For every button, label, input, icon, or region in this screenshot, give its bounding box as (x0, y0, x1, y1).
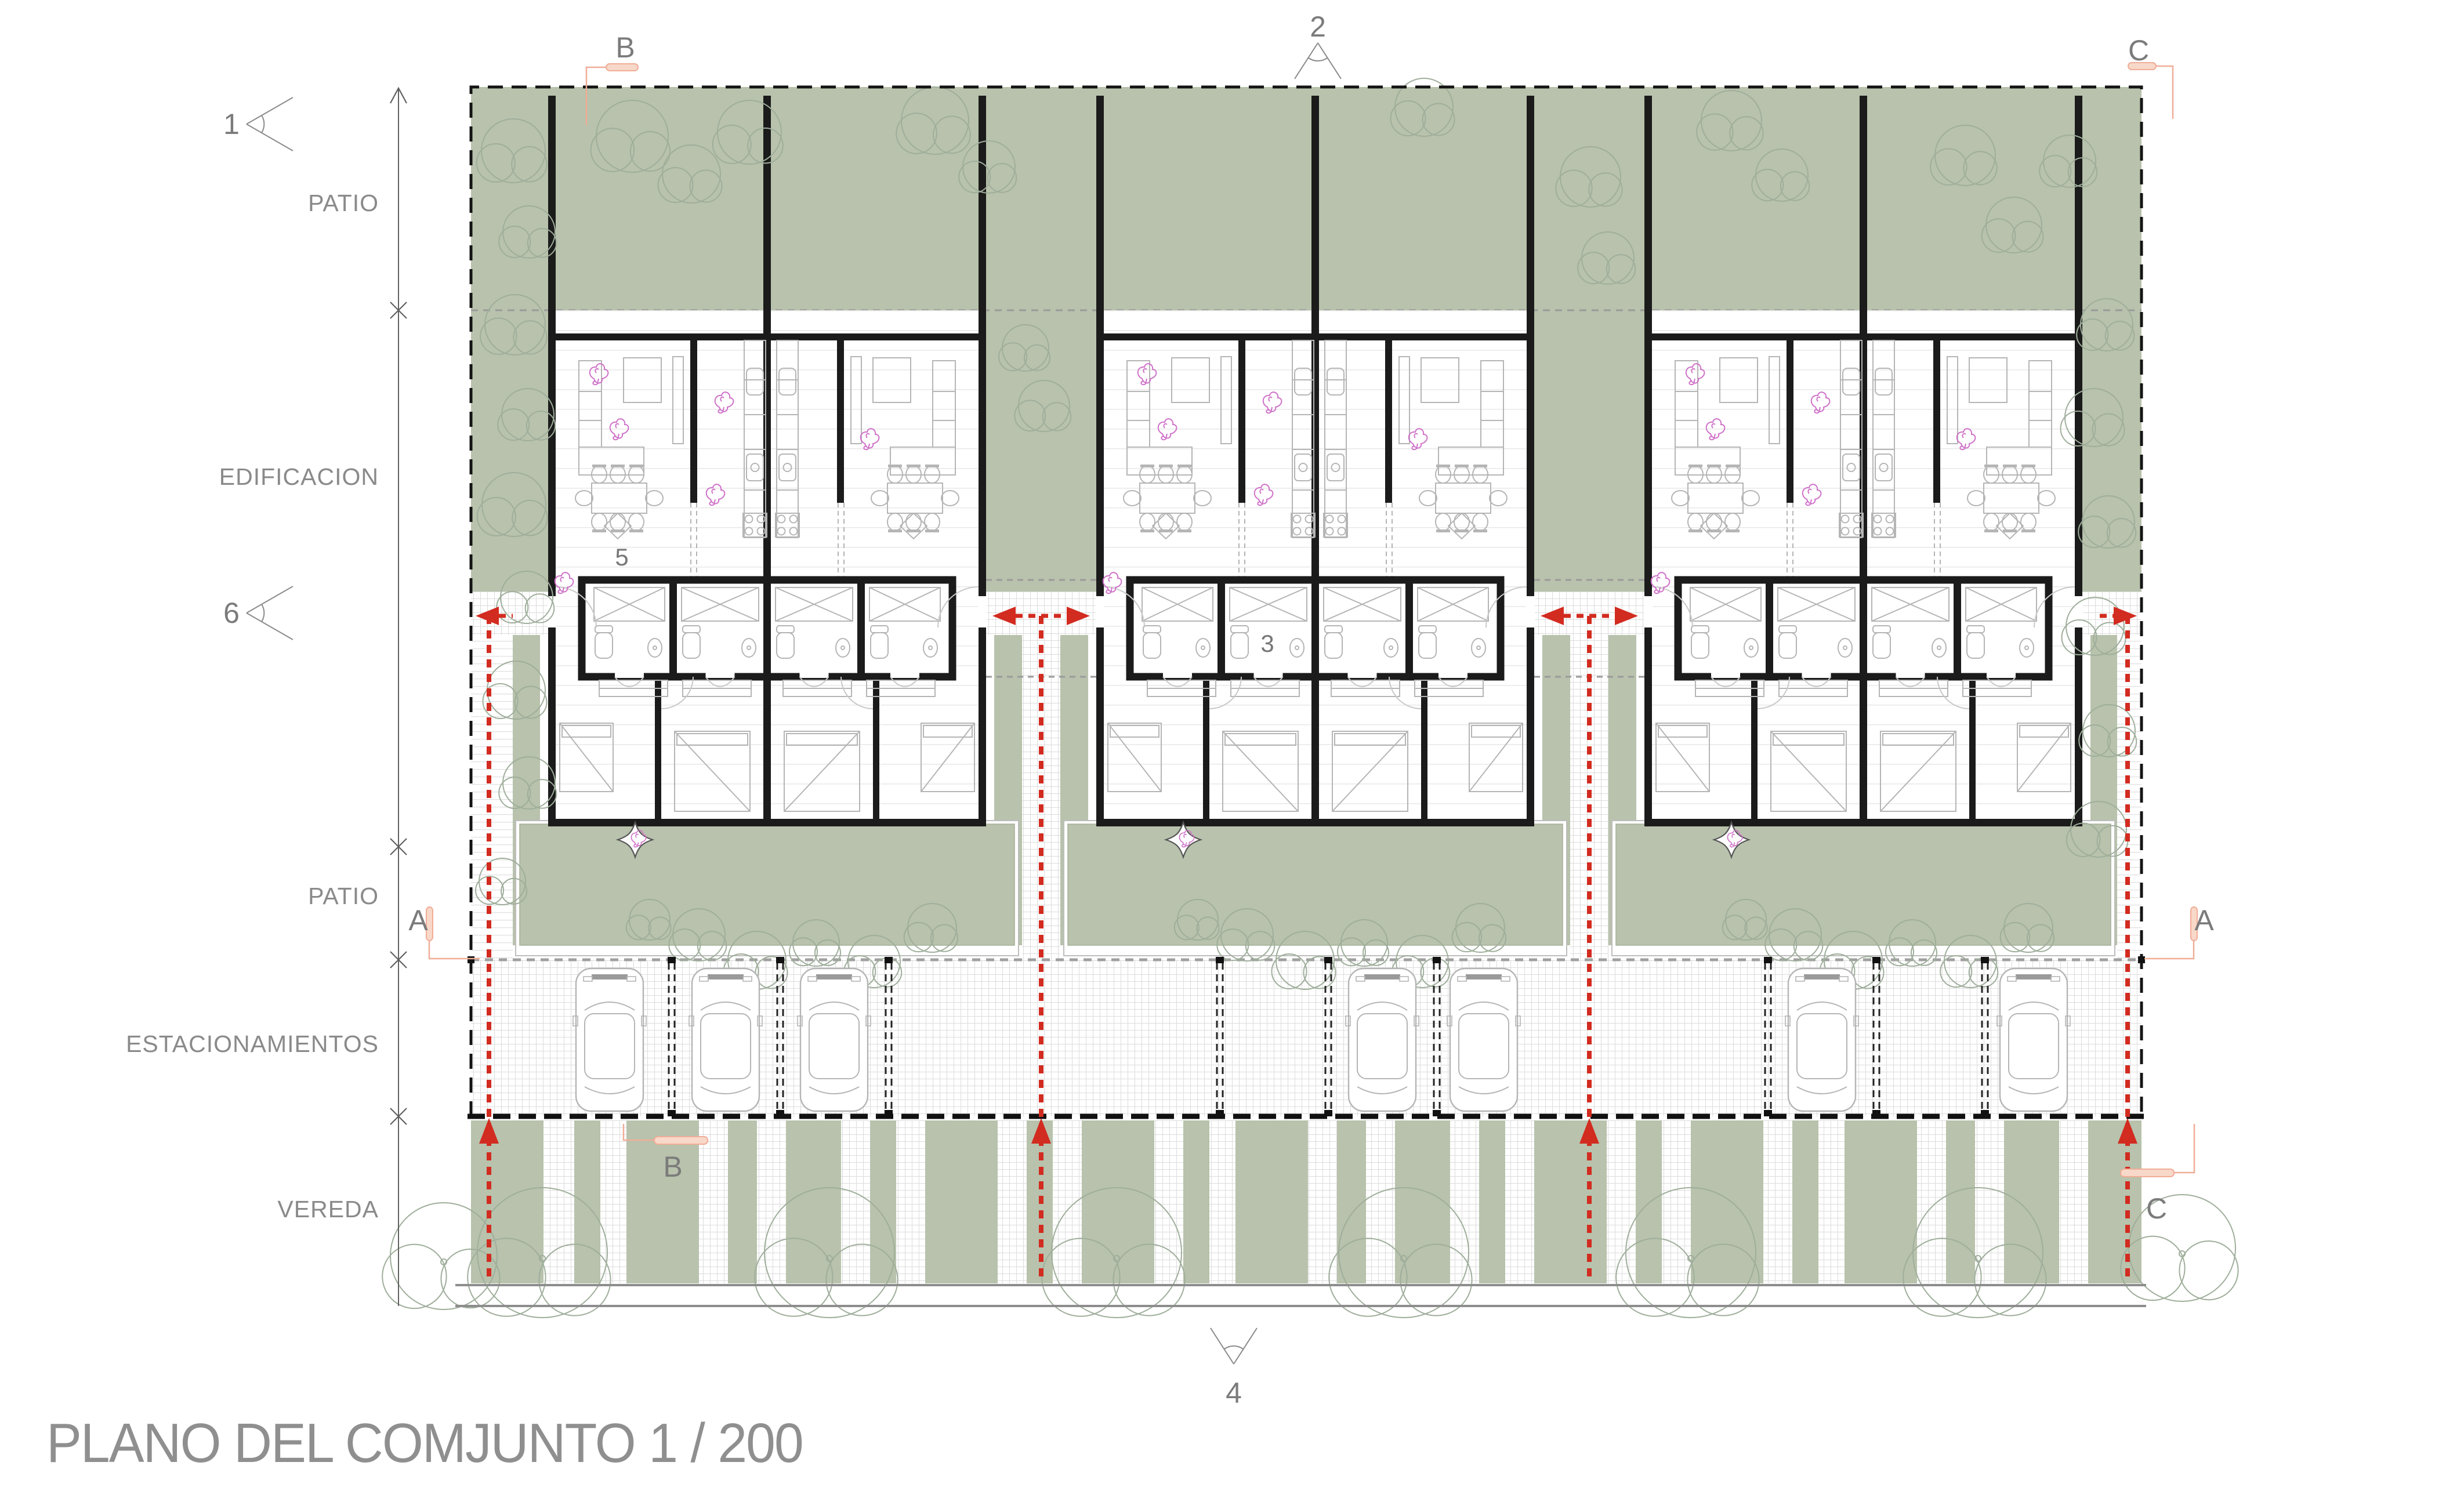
zone-label-estacionamientos: ESTACIONAMIENTOS (100, 1029, 379, 1059)
zone-label-vereda: VEREDA (100, 1194, 379, 1224)
section-marker-c-top: C (2128, 34, 2149, 67)
section-marker-b-bottom: B (663, 1150, 682, 1184)
dimension-line (390, 88, 407, 1306)
keynote-5: 5 (615, 543, 628, 571)
site-plan-drawing (0, 0, 2464, 1502)
section-marker-b-top: B (615, 31, 635, 64)
section-marker-1: 1 (223, 107, 240, 141)
drawing-title: PLANO DEL COMJUNTO 1 / 200 (46, 1412, 803, 1475)
zone-label-edificacion: EDIFICACION (100, 462, 379, 492)
section-marker-4: 4 (1226, 1376, 1242, 1410)
section-marker-2: 2 (1310, 10, 1326, 43)
street (455, 1285, 2146, 1306)
section-marker-a-right: A (2194, 904, 2213, 937)
section-marker-a-left: A (408, 904, 427, 937)
section-marker-6: 6 (223, 596, 240, 630)
zone-label-patio-rear: PATIO (100, 881, 379, 911)
section-marker-c-bottom: C (2146, 1192, 2167, 1225)
keynote-3: 3 (1260, 630, 1274, 658)
site-plan-sheet: PLANO DEL COMJUNTO 1 / 200 PATIO EDIFICA… (0, 0, 2464, 1502)
zone-label-patio-top: PATIO (100, 188, 379, 218)
